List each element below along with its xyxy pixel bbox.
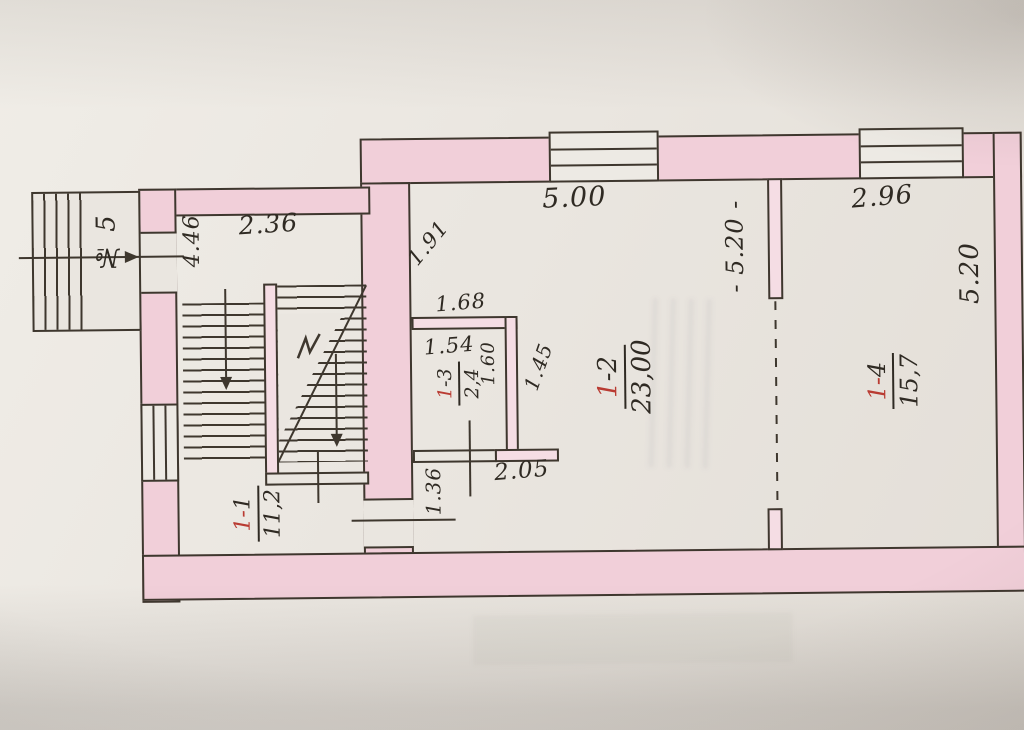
room-number-red: 1 [434, 387, 456, 399]
room-number: 1-1 [232, 496, 254, 532]
dim-room14-depth: 5.20 [955, 242, 986, 304]
room-label-1-3: 1-3 2,4 [433, 351, 486, 416]
window-pane-line [152, 406, 155, 480]
removed-partition-dashed-line [774, 301, 778, 509]
room-number-black: -3 [434, 368, 456, 387]
dim-stair-hall-width: 2.36 [238, 208, 299, 241]
paper-bleedthrough [473, 612, 794, 665]
stair-zigzag-icon [296, 332, 324, 362]
window-symbol-top-2 [859, 127, 965, 179]
window-pane-line [164, 406, 167, 480]
room-area: 23,00 [629, 339, 656, 414]
window-symbol-left [140, 403, 179, 481]
room-area: 15,7 [897, 354, 922, 408]
dim-room13-top: 1.68 [434, 289, 487, 317]
room-area: 2,4 [463, 368, 482, 398]
window-pane-line [551, 163, 657, 166]
room-number-black: 1 [230, 496, 255, 510]
apartment-number: № 5 [91, 214, 122, 272]
room-number-red: 1 [593, 381, 623, 398]
entrance-door-opening [139, 232, 178, 294]
porch-steps [33, 193, 83, 330]
door-opening-hall-room12 [363, 498, 414, 549]
room13-bottom-partition-left [413, 449, 497, 463]
room-number-black: 4 [863, 362, 891, 378]
window-pane-line [861, 160, 962, 163]
dim-room13-bottom: 2.05 [493, 456, 550, 486]
dim-room13-outer-depth: 1.45 [519, 340, 558, 394]
room-area: 11,2 [262, 489, 285, 538]
room-number: 1-3 [436, 368, 455, 399]
room-number-red: 1- [863, 377, 891, 401]
right-wall [993, 132, 1024, 548]
room13-door-centerline [469, 420, 472, 496]
room-label-1-1: 1-1 11,2 [230, 470, 287, 557]
window-symbol-top-1 [549, 130, 660, 182]
dim-hall-door-width: 1.36 [421, 467, 446, 516]
room13-right-partition [504, 316, 519, 462]
room-label-1-4: 1-4 15,7 [863, 336, 924, 427]
window-pane-line [861, 144, 962, 147]
dim-room14-width: 2.96 [850, 180, 914, 215]
floor-plan-photo: 2.36 4.46 № 5 1.91 5.00 2.96 - 5.20 - 5.… [0, 0, 1024, 730]
dim-partition-length: - 5.20 - [720, 200, 749, 293]
room-number: 1-2 [595, 356, 621, 398]
room-number: 1-4 [865, 362, 889, 401]
entry-arrow-head [125, 251, 139, 263]
room-number-black: -2 [593, 356, 623, 382]
window-pane-line [551, 147, 657, 150]
stair-flight-right [277, 285, 368, 463]
dim-room12-width: 5.00 [542, 181, 607, 215]
room13-top-partition [411, 316, 517, 330]
floor-plan: 2.36 4.46 № 5 1.91 5.00 2.96 - 5.20 - 5.… [0, 0, 1024, 730]
room-number-red: 1- [231, 510, 256, 532]
partition-stub-top [767, 178, 783, 299]
room-label-1-2: 1-2 23,00 [592, 321, 659, 432]
stair-arrow-left-head [220, 377, 232, 390]
stair-arrow-right-head [331, 434, 343, 447]
dim-stair-hall-depth: 4.46 [179, 214, 205, 267]
partition-stub-bottom [768, 508, 783, 550]
